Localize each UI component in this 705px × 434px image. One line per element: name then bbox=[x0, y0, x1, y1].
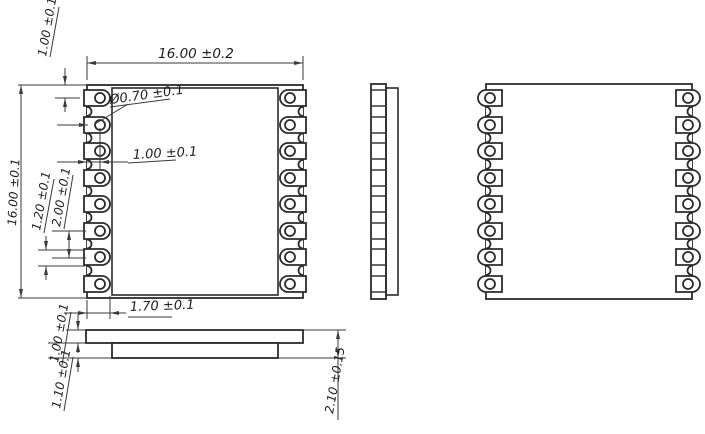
dim-arrow bbox=[87, 61, 96, 65]
pad-hole bbox=[485, 120, 495, 130]
dim-arrow bbox=[76, 358, 80, 367]
dim-arrow bbox=[44, 266, 48, 275]
pad-hole bbox=[485, 199, 495, 209]
pad-hole bbox=[683, 199, 693, 209]
pad-hole bbox=[683, 146, 693, 156]
dim-arrow bbox=[78, 160, 87, 164]
pad-hole bbox=[683, 226, 693, 236]
edge-notch bbox=[87, 266, 92, 275]
edge-notch bbox=[688, 160, 692, 169]
pad-hole bbox=[285, 199, 295, 209]
edge-notch bbox=[486, 160, 491, 169]
edge-notch bbox=[688, 213, 692, 222]
pad-hole bbox=[485, 279, 495, 289]
edge-notch bbox=[688, 134, 692, 143]
dim-arrow bbox=[67, 249, 71, 258]
dim-arrow bbox=[63, 98, 67, 107]
edge-notch bbox=[486, 240, 491, 249]
pad-hole bbox=[95, 173, 105, 183]
dim-arrow bbox=[76, 343, 80, 352]
dim-top-pad-offset-label: 1.00 ±0.1 bbox=[35, 0, 59, 58]
pad-hole bbox=[485, 252, 495, 262]
pad-hole bbox=[95, 279, 105, 289]
edge-notch bbox=[299, 107, 304, 116]
dim-arrow bbox=[76, 321, 80, 330]
pad-hole bbox=[683, 93, 693, 103]
edge-notch bbox=[87, 160, 92, 169]
drawing-canvas: 16.00 ±0.2 1.00 ±0.1 Ø0.70 ±0.1 1.00 ±0.… bbox=[0, 0, 705, 434]
pad-hole bbox=[485, 173, 495, 183]
edge-notch bbox=[87, 107, 92, 116]
edge-notch bbox=[299, 187, 304, 196]
dim-arrow bbox=[19, 85, 23, 94]
edge-notch bbox=[87, 240, 92, 249]
pad-hole bbox=[95, 226, 105, 236]
dim-arrow bbox=[110, 311, 119, 315]
module-body-outline bbox=[87, 85, 303, 298]
dim-arrow bbox=[67, 231, 71, 240]
edge-notch bbox=[299, 266, 304, 275]
pad-hole bbox=[285, 279, 295, 289]
dim-arrow bbox=[19, 289, 23, 298]
edge-notch bbox=[299, 213, 304, 222]
pad-hole bbox=[285, 120, 295, 130]
pad-hole bbox=[285, 252, 295, 262]
pad-hole bbox=[485, 93, 495, 103]
edge-notch bbox=[486, 187, 491, 196]
dim-total-thickness-label: 2.10 ±0.15 bbox=[322, 346, 347, 415]
top-layer-profile bbox=[86, 330, 303, 343]
pad-hole bbox=[285, 173, 295, 183]
dim-arrow bbox=[44, 241, 48, 250]
pad-edge-strip bbox=[371, 84, 386, 299]
edge-notch bbox=[299, 160, 304, 169]
edge-notch bbox=[486, 107, 491, 116]
edge-notch bbox=[688, 107, 692, 116]
front-view bbox=[84, 85, 306, 298]
edge-notch bbox=[688, 266, 692, 275]
edge-notch bbox=[688, 187, 692, 196]
dim-arrow bbox=[336, 330, 340, 339]
pad-hole bbox=[285, 146, 295, 156]
dim-arrow bbox=[78, 311, 87, 315]
edge-notch bbox=[87, 213, 92, 222]
pad-hole bbox=[683, 173, 693, 183]
dim-top-width-label: 16.00 ±0.2 bbox=[158, 46, 234, 62]
pad-hole bbox=[485, 226, 495, 236]
module-body-outline bbox=[486, 84, 692, 299]
pad-hole bbox=[95, 199, 105, 209]
edge-notch bbox=[486, 213, 491, 222]
edge-notch bbox=[486, 266, 491, 275]
side-profile-view bbox=[371, 84, 398, 299]
bottom-profile-view bbox=[86, 330, 303, 358]
bottom-layer-profile bbox=[112, 343, 278, 358]
pad-hole bbox=[285, 226, 295, 236]
edge-notch bbox=[688, 240, 692, 249]
edge-notch bbox=[486, 134, 491, 143]
pad-hole bbox=[485, 146, 495, 156]
dim-left-height-label: 16.00 ±0.1 bbox=[5, 158, 23, 226]
pad-hole bbox=[285, 93, 295, 103]
board-edge-outline bbox=[386, 88, 398, 295]
dim-arrow bbox=[63, 76, 67, 85]
edge-notch bbox=[87, 187, 92, 196]
pad-hole bbox=[95, 93, 105, 103]
back-view bbox=[478, 84, 700, 299]
technical-drawing: 16.00 ±0.2 1.00 ±0.1 Ø0.70 ±0.1 1.00 ±0.… bbox=[0, 0, 705, 434]
dim-pad-length-label: 1.70 ±0.1 bbox=[130, 298, 195, 315]
edge-notch bbox=[299, 134, 304, 143]
edge-notch bbox=[299, 240, 304, 249]
dim-arrow bbox=[294, 61, 303, 65]
pad-hole bbox=[683, 279, 693, 289]
edge-notch bbox=[87, 134, 92, 143]
pad-hole bbox=[683, 252, 693, 262]
pad-hole bbox=[95, 252, 105, 262]
pad-hole bbox=[683, 120, 693, 130]
